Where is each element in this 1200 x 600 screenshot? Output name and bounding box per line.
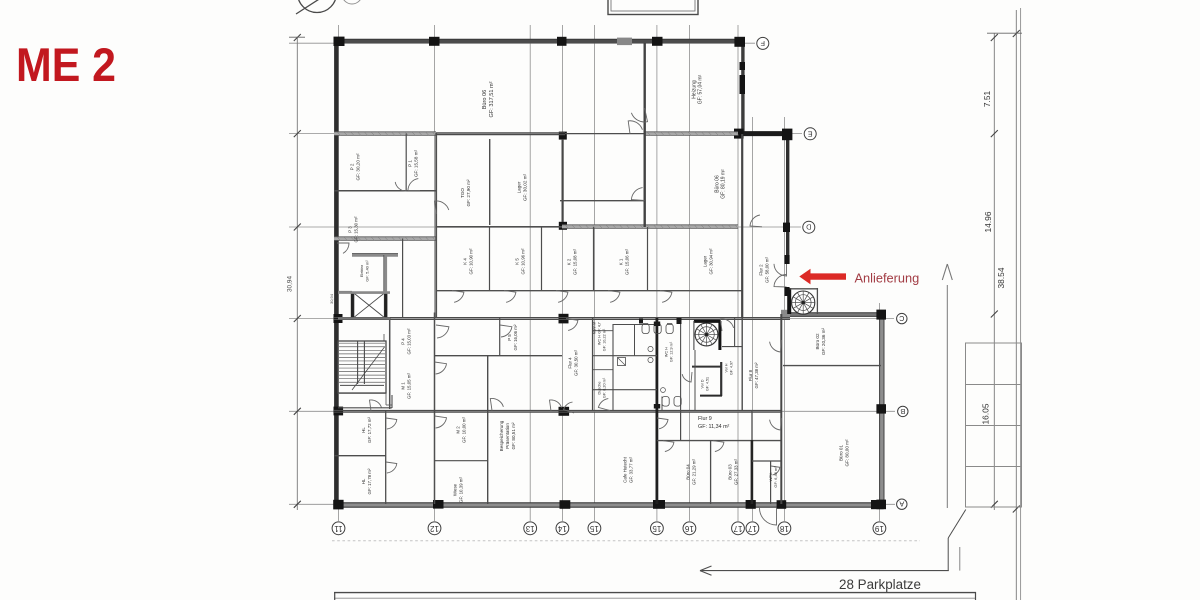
svg-text:C: C (899, 314, 904, 323)
svg-text:GF: 27,33 m²: GF: 27,33 m² (733, 459, 738, 485)
svg-text:13: 13 (525, 524, 534, 533)
svg-text:GF: 57,04 m²: GF: 57,04 m² (698, 74, 704, 104)
svg-text:GF: 16,06 m²: GF: 16,06 m² (513, 324, 518, 350)
svg-text:11: 11 (334, 524, 343, 533)
svg-text:HL: HL (361, 478, 366, 484)
svg-text:18: 18 (779, 524, 788, 533)
svg-text:GF: 30,50 m²: GF: 30,50 m² (573, 350, 578, 376)
svg-text:GF: 17,78 m²: GF: 17,78 m² (367, 468, 372, 494)
svg-text:GF: 47,38 m²: GF: 47,38 m² (754, 362, 759, 388)
svg-text:17: 17 (733, 524, 742, 533)
svg-text:Lager: Lager (517, 181, 522, 193)
svg-text:Wiese: Wiese (453, 483, 458, 496)
svg-text:GF: 80,51 m²: GF: 80,51 m² (511, 422, 516, 450)
svg-text:F: F (760, 39, 765, 48)
svg-text:GF: 11,34 m²: GF: 11,34 m² (698, 424, 730, 430)
svg-text:GF: 58,00 m²: GF: 58,00 m² (764, 257, 769, 283)
svg-text:GF: 4,7: GF: 4,7 (597, 322, 601, 333)
svg-text:K 5: K 5 (515, 258, 520, 265)
svg-text:16: 16 (684, 524, 693, 533)
svg-text:Cafe Hutecht: Cafe Hutecht (623, 456, 628, 482)
svg-text:Bespeicherung: Bespeicherung (499, 420, 504, 451)
svg-text:B: B (900, 407, 905, 416)
svg-text:WPA: WPA (768, 472, 773, 481)
svg-text:P 4: P 4 (401, 338, 406, 345)
svg-text:D: D (806, 223, 811, 232)
svg-text:Lager: Lager (703, 255, 708, 267)
svg-text:TGO: TGO (460, 188, 465, 198)
svg-text:GF: 15,03 m²: GF: 15,03 m² (406, 328, 411, 354)
svg-text:GF: 33,77 m²: GF: 33,77 m² (628, 457, 633, 483)
svg-text:14.96: 14.96 (983, 211, 993, 232)
svg-text:ME 2: ME 2 (16, 38, 116, 91)
svg-text:19: 19 (874, 524, 883, 533)
svg-text:GF: 21,29 m²: GF: 21,29 m² (691, 459, 696, 485)
svg-text:Vor H: Vor H (725, 363, 729, 372)
svg-text:Büro 02: Büro 02 (815, 333, 820, 350)
svg-text:Dusche: Dusche (597, 382, 601, 395)
svg-text:Büro 06: Büro 06 (714, 175, 720, 193)
svg-text:Büro 06: Büro 06 (482, 90, 488, 110)
svg-text:E: E (808, 129, 813, 138)
svg-text:Mann M: Mann M (593, 322, 597, 334)
svg-text:GF: 10,96 m²: GF: 10,96 m² (520, 248, 525, 274)
svg-text:14: 14 (557, 524, 566, 533)
svg-text:15: 15 (652, 524, 661, 533)
svg-text:GF: 10,22 m²: GF: 10,22 m² (603, 328, 607, 351)
svg-text:GF: 6,46 m²: GF: 6,46 m² (773, 466, 778, 488)
svg-text:K 2: K 2 (567, 258, 572, 265)
svg-text:Anlieferung: Anlieferung (855, 271, 920, 286)
svg-text:GF: 8,20 m²: GF: 8,20 m² (603, 377, 607, 398)
svg-text:GF: 17,72 m²: GF: 17,72 m² (367, 417, 372, 443)
svg-text:A: A (899, 500, 904, 509)
svg-text:15: 15 (589, 524, 598, 533)
svg-text:GF: 30,02 m²: GF: 30,02 m² (523, 174, 528, 202)
svg-text:GF: 5,40 m²: GF: 5,40 m² (365, 260, 370, 282)
svg-text:GF: 15,58 m²: GF: 15,58 m² (414, 150, 419, 178)
svg-text:Flur 9: Flur 9 (698, 416, 712, 422)
svg-text:38.54: 38.54 (996, 267, 1006, 288)
svg-text:GF: 20,36 m²: GF: 20,36 m² (821, 328, 826, 356)
svg-text:Flur 4: Flur 4 (568, 357, 573, 369)
svg-text:GF: 12,9 m²: GF: 12,9 m² (670, 341, 674, 362)
svg-text:Elektro: Elektro (359, 264, 364, 277)
svg-text:GF: 30,20 m²: GF: 30,20 m² (356, 153, 361, 181)
svg-text:M 1: M 1 (401, 382, 406, 390)
svg-text:GF: 15,06 m²: GF: 15,06 m² (624, 249, 629, 275)
svg-text:P 2: P 2 (350, 163, 355, 170)
svg-text:Büro 03: Büro 03 (728, 464, 733, 480)
svg-text:GF: 15,08 m²: GF: 15,08 m² (572, 249, 577, 275)
svg-text:GF: 10,00 m²: GF: 10,00 m² (461, 417, 466, 443)
svg-text:P 5: P 5 (507, 334, 512, 341)
svg-text:K 1: K 1 (619, 258, 624, 265)
svg-text:HL: HL (361, 427, 366, 433)
svg-text:Präsentation: Präsentation (505, 423, 510, 449)
svg-text:GF: 80,19 m²: GF: 80,19 m² (721, 169, 727, 199)
svg-text:GF: 30,94 m²: GF: 30,94 m² (708, 248, 713, 274)
svg-text:GF: 4,97: GF: 4,97 (730, 361, 734, 375)
svg-text:Flur 2: Flur 2 (759, 264, 764, 276)
svg-text:12: 12 (430, 524, 439, 533)
svg-text:7.51: 7.51 (982, 91, 992, 108)
svg-text:GF: 27,90 m²: GF: 27,90 m² (466, 179, 471, 207)
svg-text:30,94: 30,94 (287, 276, 294, 292)
svg-text:Büro 04: Büro 04 (686, 464, 691, 480)
svg-text:17: 17 (747, 524, 756, 533)
svg-text:Vor D: Vor D (701, 379, 705, 388)
svg-text:30,94: 30,94 (329, 293, 334, 304)
svg-text:GF: 15,05 m²: GF: 15,05 m² (406, 373, 411, 399)
svg-text:GF: 317,51 m²: GF: 317,51 m² (489, 81, 495, 117)
svg-text:Flur 8: Flur 8 (748, 369, 753, 381)
svg-text:28 Parkplatze: 28 Parkplatze (839, 577, 921, 592)
svg-text:16.05: 16.05 (981, 403, 991, 424)
svg-text:GF: 4,51: GF: 4,51 (706, 377, 710, 391)
svg-text:P 1: P 1 (408, 160, 413, 167)
svg-text:GF: 80,00 m²: GF: 80,00 m² (845, 439, 850, 467)
svg-text:WC H: WC H (597, 335, 601, 345)
svg-text:M 2: M 2 (456, 426, 461, 434)
svg-text:P 3: P 3 (348, 226, 353, 233)
svg-text:GF: 10,90 m²: GF: 10,90 m² (468, 248, 473, 274)
svg-text:GF: 10,39 m²: GF: 10,39 m² (458, 477, 463, 503)
svg-text:Büro 01: Büro 01 (839, 445, 844, 462)
svg-text:GF: 15,30 m²: GF: 15,30 m² (353, 216, 358, 242)
svg-text:WC H: WC H (664, 347, 668, 357)
svg-text:K 4: K 4 (463, 258, 468, 265)
svg-text:Heizung: Heizung (691, 80, 697, 99)
